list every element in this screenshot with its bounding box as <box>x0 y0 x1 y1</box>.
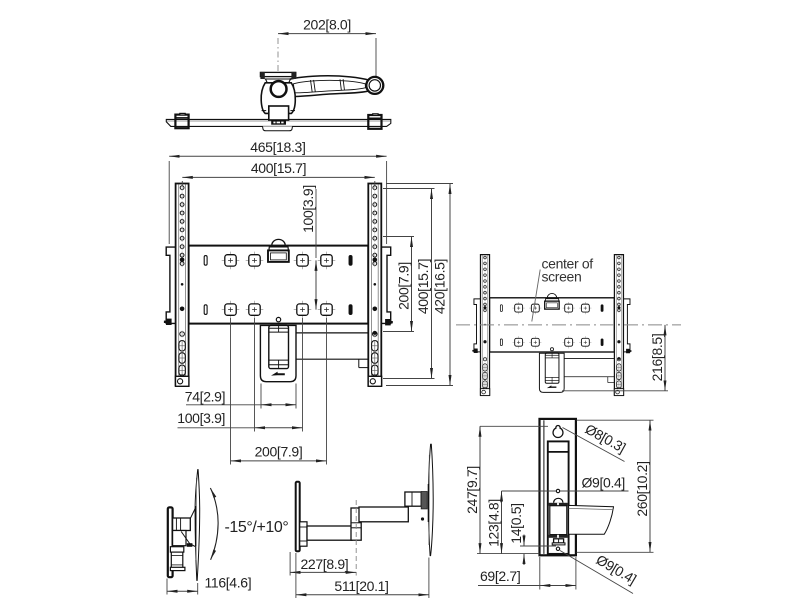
svg-text:400[15.7]: 400[15.7] <box>251 160 306 176</box>
svg-text:227[8.9]: 227[8.9] <box>301 556 349 572</box>
svg-text:216[8.5]: 216[8.5] <box>649 334 665 382</box>
svg-text:200[7.9]: 200[7.9] <box>255 443 303 459</box>
svg-text:14[0.5]: 14[0.5] <box>508 503 524 543</box>
svg-text:200[7.9]: 200[7.9] <box>396 262 412 310</box>
svg-text:116[4.6]: 116[4.6] <box>205 574 252 590</box>
svg-text:screen: screen <box>542 268 582 284</box>
svg-text:511[20.1]: 511[20.1] <box>334 578 388 594</box>
svg-text:123[4.8]: 123[4.8] <box>486 499 502 547</box>
svg-text:100[3.9]: 100[3.9] <box>300 185 316 233</box>
svg-text:100[3.9]: 100[3.9] <box>177 410 225 426</box>
svg-text:202[8.0]: 202[8.0] <box>303 17 351 33</box>
svg-text:420[16.5]: 420[16.5] <box>431 259 447 314</box>
svg-text:74[2.9]: 74[2.9] <box>185 388 225 404</box>
svg-text:69[2.7]: 69[2.7] <box>480 568 520 584</box>
svg-text:400[15.7]: 400[15.7] <box>415 259 431 314</box>
svg-text:Ø9[0.4]: Ø9[0.4] <box>582 475 625 491</box>
svg-text:-15°/+10°: -15°/+10° <box>225 519 289 536</box>
svg-text:260[10.2]: 260[10.2] <box>634 461 650 516</box>
svg-text:465[18.3]: 465[18.3] <box>250 139 305 155</box>
svg-text:247[9.7]: 247[9.7] <box>464 466 480 514</box>
